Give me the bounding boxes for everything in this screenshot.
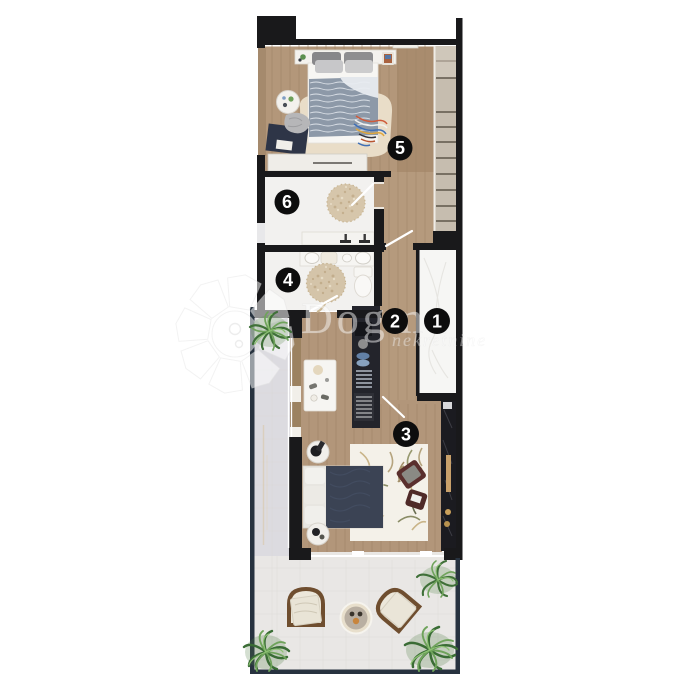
svg-text:3: 3 xyxy=(401,425,411,445)
svg-text:6: 6 xyxy=(282,192,292,212)
svg-text:1: 1 xyxy=(432,312,442,332)
svg-text:5: 5 xyxy=(395,138,405,158)
svg-text:4: 4 xyxy=(283,270,293,290)
svg-text:2: 2 xyxy=(390,312,400,332)
